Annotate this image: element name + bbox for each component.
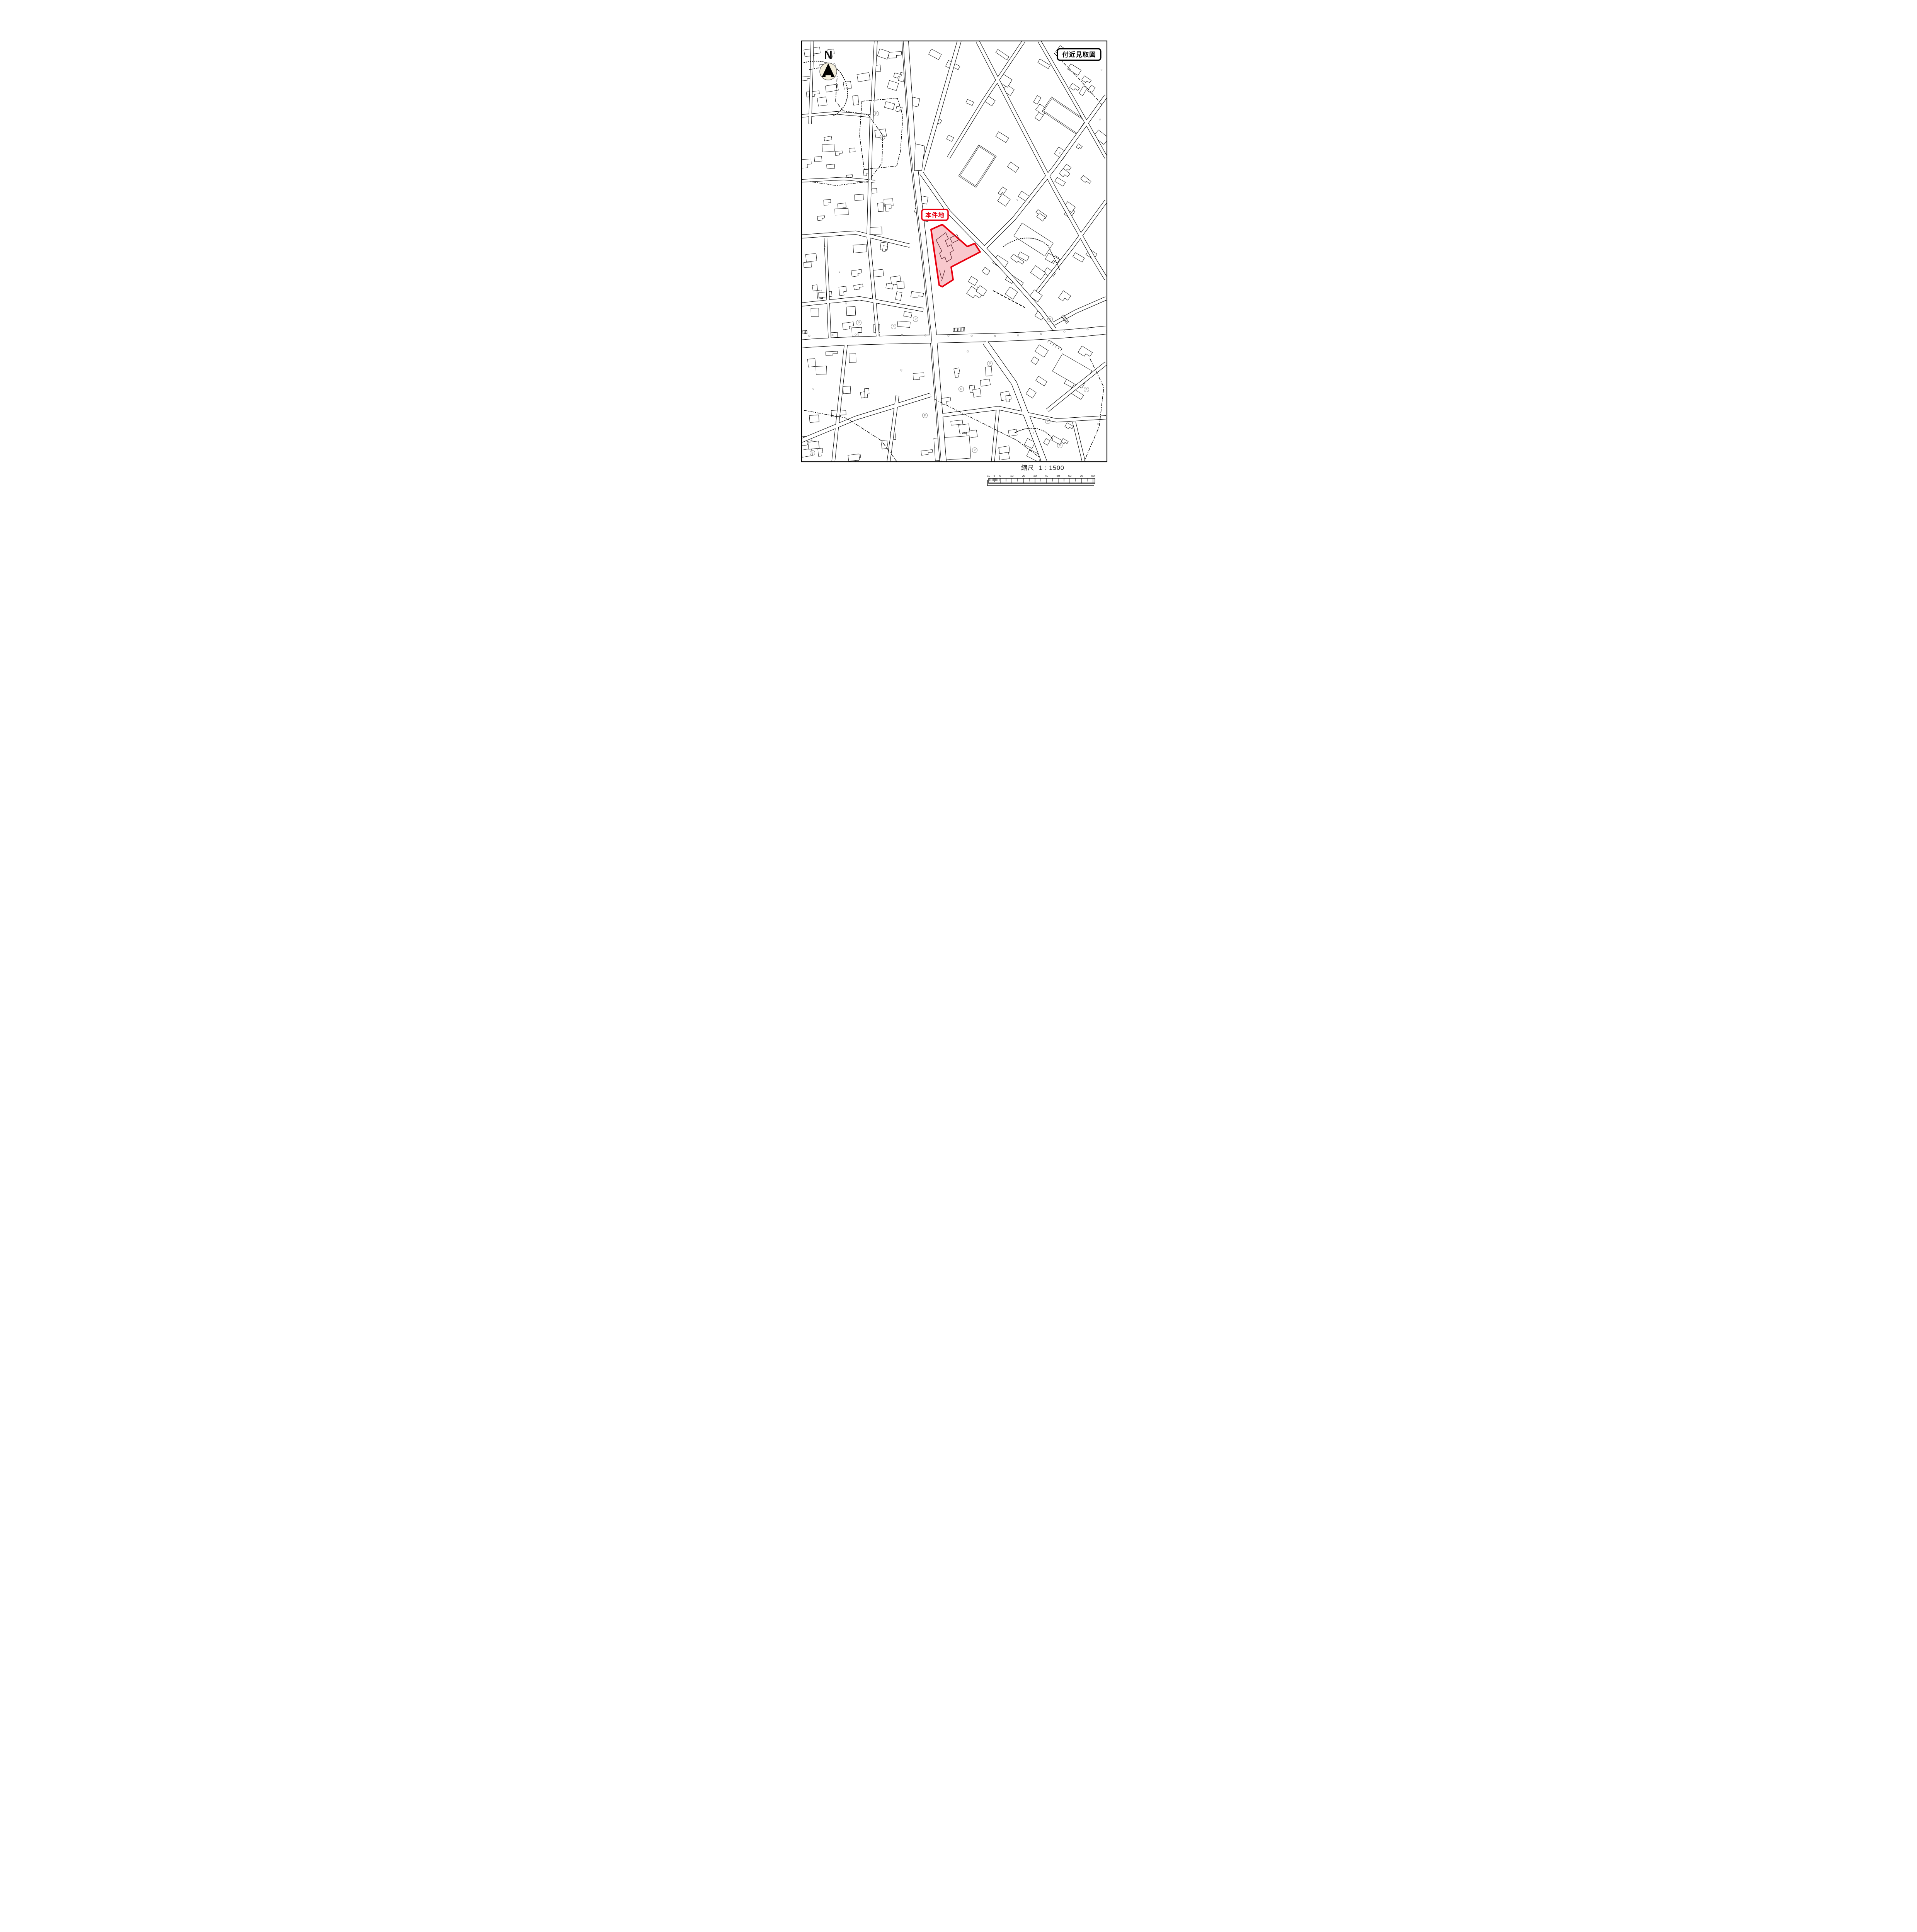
building-footprint — [818, 448, 823, 456]
scale-bar-main-label: 80 — [1091, 474, 1095, 478]
scale-bar-left-label: 0 — [999, 474, 1001, 478]
building-footprint — [877, 49, 890, 59]
building-footprint — [826, 351, 838, 355]
building-footprint — [1044, 439, 1050, 446]
scale-bar-left-label: 5 — [994, 474, 995, 478]
check-mark: ∨ — [1059, 151, 1061, 155]
scale-bar-main-label: 10 — [1010, 474, 1013, 478]
street-tree-mark — [809, 335, 810, 337]
building-footprint — [1079, 86, 1087, 95]
parking-symbol-letter: P — [1049, 318, 1051, 321]
building-footprint — [929, 49, 941, 60]
building-footprint — [1059, 168, 1070, 179]
building-footprint — [998, 194, 1010, 206]
scale-caption: 縮尺 1 : 1500 — [1021, 464, 1064, 471]
road-surface — [833, 343, 846, 462]
building-footprint — [865, 388, 870, 398]
check-mark: ∨ — [824, 245, 826, 249]
scale-label: 縮尺 — [1021, 464, 1034, 471]
building-footprint — [822, 144, 834, 152]
scale-bar-left-label: 10 — [987, 474, 990, 478]
light-mark: ☼ — [949, 62, 952, 66]
building-footprint — [897, 321, 910, 328]
check-mark: ∨ — [976, 285, 979, 289]
road-surface — [868, 236, 878, 340]
check-mark: ∨ — [1016, 198, 1018, 202]
building-footprint — [1051, 435, 1062, 445]
road-surface — [1074, 422, 1084, 462]
building-footprint — [817, 216, 825, 221]
building-footprint — [1035, 345, 1049, 357]
light-mark: ☼ — [1100, 68, 1103, 71]
building-footprint — [872, 269, 884, 277]
scale-ratio: 1 : 1500 — [1039, 465, 1064, 471]
building-footprint — [855, 194, 863, 201]
building-footprint — [897, 281, 904, 289]
building-footprint — [883, 246, 888, 252]
parking-symbol-letter: P — [811, 451, 813, 455]
parking-symbol-letter: P — [1059, 444, 1061, 447]
building-footprint — [980, 379, 990, 386]
parking-symbol-letter: P — [914, 318, 916, 321]
hatch-tick — [1047, 340, 1049, 342]
building-footprint — [1065, 423, 1073, 430]
building-footprint — [1008, 429, 1017, 436]
parking-symbol-letter: P — [892, 325, 894, 328]
scale-bar: 10501020304050607080 — [987, 474, 1095, 486]
building-footprint — [886, 283, 894, 289]
building-footprint — [1006, 395, 1011, 402]
building-footprint — [885, 204, 891, 211]
check-mark: ∨ — [812, 388, 814, 391]
check-mark: ∨ — [845, 302, 847, 305]
scale-bar-main-label: 70 — [1080, 474, 1083, 478]
check-mark: ∨ — [1032, 431, 1035, 434]
building-footprint — [982, 267, 990, 275]
hatch-tick — [1056, 345, 1057, 347]
building-footprint — [996, 132, 1009, 143]
scale-bar-labels: 10501020304050607080 — [987, 474, 1095, 478]
parking-symbol-letter: P — [858, 321, 860, 325]
building-footprint — [878, 203, 884, 212]
building-footprint — [812, 285, 818, 291]
hatch-tick — [1058, 347, 1059, 349]
building-footprint — [1031, 357, 1039, 365]
building-footprint — [1078, 346, 1093, 359]
building-footprint — [958, 424, 970, 433]
building-footprint — [835, 208, 848, 215]
parking-symbol-letter: P — [924, 414, 926, 417]
subject-site-label-text: 本件地 — [925, 211, 945, 219]
building-footprint — [807, 359, 815, 367]
parking-symbol-letter: P — [974, 449, 976, 452]
scale-bar-main-label: 20 — [1022, 474, 1025, 478]
building-footprint — [870, 227, 882, 235]
utility-mark: Q — [998, 448, 1000, 451]
building-footprint — [999, 452, 1010, 460]
building-footprint — [806, 91, 820, 97]
building-footprint — [853, 244, 867, 253]
building-footprint — [846, 306, 856, 315]
building-footprint — [801, 159, 812, 168]
map-title: 付近見取図 — [1062, 51, 1096, 58]
hatch-tick — [1053, 344, 1054, 346]
building-footprint — [848, 454, 860, 461]
building-footprint — [1026, 388, 1036, 398]
building-footprint — [843, 386, 851, 394]
large-building-footprint — [958, 145, 996, 187]
north-label: N — [824, 49, 833, 61]
building-footprint — [913, 373, 924, 380]
steps-symbol — [953, 328, 965, 332]
check-mark: ∨ — [1099, 118, 1101, 121]
parking-symbol-letter: P — [875, 112, 877, 116]
building-footprint — [1058, 291, 1071, 303]
building-footprint — [887, 80, 898, 90]
building-footprint — [854, 284, 863, 290]
building-footprint — [1008, 162, 1019, 172]
building-footprint — [801, 449, 813, 457]
building-footprint — [851, 269, 862, 277]
building-footprint — [1069, 83, 1079, 92]
building-footprint — [889, 51, 902, 58]
building-footprint — [973, 388, 981, 397]
building-footprint — [954, 368, 960, 378]
building-footprint — [947, 135, 954, 142]
building-footprint — [1055, 177, 1066, 186]
road-surface — [868, 41, 876, 234]
building-footprint — [985, 367, 992, 376]
building-footprint — [921, 450, 933, 456]
building-footprint — [824, 136, 832, 141]
building-footprint — [835, 151, 843, 155]
building-footprint — [1036, 376, 1047, 386]
building-footprint — [853, 95, 859, 105]
light-mark: ☼ — [1096, 422, 1100, 425]
building-footprint — [849, 354, 856, 362]
large-building-footprint — [1014, 223, 1053, 256]
parking-symbol-letter: P — [1085, 388, 1087, 391]
parking-symbol-letter: P — [881, 136, 883, 139]
building-footprint — [1038, 59, 1050, 69]
parking-symbol-letter: P — [1047, 420, 1049, 423]
building-footprint — [1033, 95, 1041, 104]
building-footprint — [808, 441, 819, 449]
vicinity-map-canvas: PPPPPPPPPPPPPP∨∨∨∨∨∨∨∨∨QQQQ☼☼☼ N 付近見取図 本… — [767, 0, 1150, 542]
building-footprint — [857, 73, 870, 82]
building-footprint — [1005, 287, 1018, 299]
building-footprint — [904, 311, 912, 317]
building-footprint — [1073, 253, 1084, 262]
building-footprint — [809, 415, 819, 423]
building-footprint — [1088, 85, 1095, 93]
building-footprint — [814, 156, 822, 162]
scale-bar-main-label: 50 — [1057, 474, 1060, 478]
building-footprint — [827, 164, 835, 169]
building-footprint — [966, 99, 974, 105]
building-footprint — [863, 169, 869, 176]
building-footprint — [1061, 439, 1068, 445]
building-footprint — [896, 292, 902, 301]
building-footprint — [805, 253, 817, 262]
utility-mark: Q — [900, 369, 902, 372]
map-sheet: PPPPPPPPPPPPPP∨∨∨∨∨∨∨∨∨QQQQ☼☼☼ N 付近見取図 本… — [767, 0, 1150, 542]
scale-bar-main-label: 60 — [1068, 474, 1071, 478]
title-box: 付近見取図 — [1057, 49, 1101, 60]
hatch-tick — [1061, 349, 1062, 351]
steps-symbol — [800, 331, 807, 334]
building-footprint — [884, 102, 895, 110]
building-footprint — [804, 262, 812, 267]
building-footprint — [849, 148, 855, 152]
scale-bar-main-label: 30 — [1033, 474, 1037, 478]
building-footprint — [968, 276, 978, 286]
building-footprint — [816, 366, 827, 374]
map-inner: PPPPPPPPPPPPPP∨∨∨∨∨∨∨∨∨QQQQ☼☼☼ — [799, 41, 1109, 464]
hatch-tick — [1050, 342, 1052, 344]
building-footprint — [852, 327, 862, 336]
building-footprint — [1081, 175, 1091, 185]
building-footprint — [872, 189, 877, 194]
building-footprint — [817, 97, 827, 106]
check-mark: ∨ — [838, 270, 841, 274]
road-surface — [802, 395, 931, 440]
parking-symbol-letter: P — [960, 388, 962, 391]
subject-site-label: 本件地 — [922, 209, 948, 220]
building-footprint — [996, 49, 1009, 60]
scale-bar-main-label: 40 — [1045, 474, 1048, 478]
building-footprint — [911, 291, 924, 299]
utility-mark: Q — [967, 350, 969, 353]
building-footprint — [811, 308, 819, 317]
building-footprint — [1030, 265, 1045, 280]
building-footprint — [951, 420, 963, 425]
road-surface — [1054, 298, 1106, 324]
parking-symbol-letter: P — [989, 362, 991, 366]
building-footprint — [839, 286, 847, 296]
building-footprint — [1076, 144, 1082, 150]
building-footprint — [824, 199, 831, 205]
